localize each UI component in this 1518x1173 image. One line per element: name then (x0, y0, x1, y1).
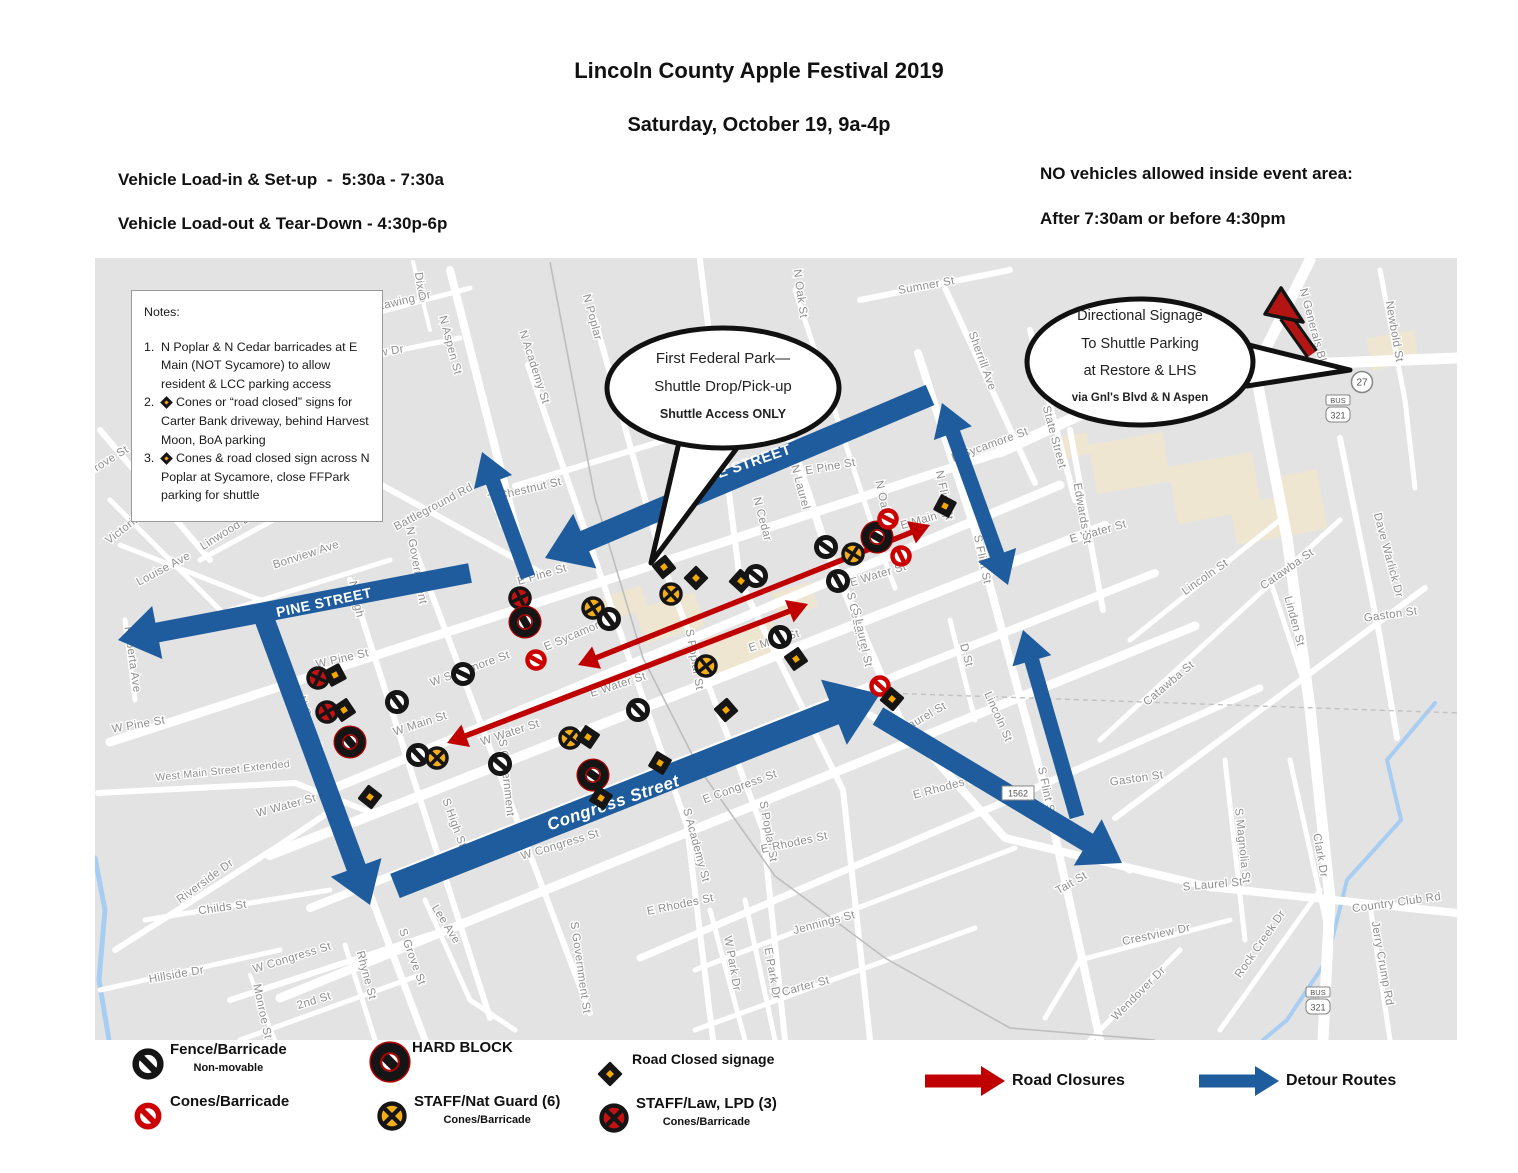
legend-detour-routes-icon (1196, 1066, 1282, 1096)
legend-nat-guard-label: STAFF/Nat Guard (6) (414, 1094, 560, 1111)
marker-guard (427, 748, 447, 768)
svg-text:BUS: BUS (1330, 396, 1345, 405)
route-shield-1562: 1562 (1002, 786, 1034, 800)
marker-fence (628, 700, 647, 719)
bubble-text: First Federal Park— (656, 350, 790, 367)
festival-map: DixonLawing DrWestview DrN Aspen StN Asp… (95, 258, 1457, 1040)
street-label: Catawba St (1141, 659, 1197, 709)
restriction-line-1: NO vehicles allowed inside event area: (1040, 164, 1353, 184)
street-label: Sherrill Ave (966, 330, 998, 392)
legend-item-road-closures: Road Closures (922, 1066, 1125, 1096)
svg-text:27: 27 (1356, 378, 1368, 389)
street-label: S High St (439, 797, 468, 850)
legend-item-cones: Cones/Barricade (126, 1094, 289, 1138)
legend-staff-law-sublabel: Cones/Barricade (636, 1116, 777, 1128)
road (1340, 438, 1397, 738)
schedule-load-in: Vehicle Load-in & Set-up - 5:30a - 7:30a (118, 170, 444, 190)
bubble-text: Shuttle Access ONLY (660, 407, 787, 421)
marker-fence (490, 754, 510, 774)
road (1220, 890, 1320, 1030)
marker-cones (525, 649, 546, 670)
building (1089, 432, 1172, 494)
legend-item-staff-law: STAFF/Law, LPD (3)Cones/Barricade (592, 1096, 777, 1140)
street-label: E Pine St (804, 457, 856, 478)
marker-fence (598, 608, 620, 630)
street-label: Bonview Ave (271, 539, 340, 572)
legend-nat-guard-icon (370, 1094, 414, 1138)
legend-item-hard-block: HARD BLOCK (368, 1040, 513, 1084)
street-label: N Poplar (580, 293, 604, 342)
marker-fence (815, 536, 837, 558)
legend-staff-law-label: STAFF/Law, LPD (3) (636, 1096, 777, 1113)
waterway (95, 858, 109, 1040)
marker-diamond (597, 1061, 622, 1086)
schedule-load-out: Vehicle Load-out & Tear-Down - 4:30p-6p (118, 214, 447, 234)
legend-road-closures-icon (922, 1066, 1008, 1096)
street-label: West Main Street Extended (155, 758, 291, 784)
marker-cones (137, 1105, 158, 1126)
street-label: S Academy St (680, 807, 711, 884)
page-subtitle: Saturday, October 19, 9a-4p (0, 114, 1518, 137)
legend-item-fence: Fence/BarricadeNon-movable (126, 1042, 287, 1086)
bubble-tail (1245, 344, 1350, 386)
notes-heading: Notes: (144, 303, 372, 322)
svg-text:321: 321 (1330, 411, 1345, 421)
legend-cones-icon (126, 1094, 170, 1138)
street-label: E Rhodes St (646, 892, 715, 918)
page-title: Lincoln County Apple Festival 2019 (0, 58, 1518, 84)
legend-fence-sublabel: Non-movable (170, 1062, 287, 1074)
note-item: 1.N Poplar & N Cedar barricades at E Mai… (144, 338, 372, 394)
marker-diamond (683, 565, 708, 590)
marker-guard (695, 655, 717, 677)
legend-staff-law-icon (592, 1096, 636, 1140)
road (950, 620, 975, 720)
legend-fence-icon (126, 1042, 170, 1086)
street-label: Wendover Dr (1110, 965, 1169, 1024)
svg-text:BUS: BUS (1310, 988, 1325, 997)
notes-list: 1.N Poplar & N Cedar barricades at E Mai… (144, 338, 372, 505)
bubble-text: Directional Signage (1077, 308, 1203, 324)
marker-cones (877, 508, 898, 529)
marker-fence (826, 569, 850, 593)
svg-text:321: 321 (1310, 1003, 1325, 1013)
legend-detour-routes-label: Detour Routes (1286, 1072, 1396, 1090)
street-label: Monroe St (250, 983, 273, 1040)
marker-fence (746, 566, 767, 587)
marker-cones (890, 545, 912, 567)
marker-law (602, 1106, 627, 1131)
marker-hard (333, 725, 367, 759)
street-label: Battleground Rd (392, 481, 475, 533)
legend-road-closed-icon (588, 1052, 632, 1096)
marker-guard (380, 1104, 405, 1129)
note-item: 3.Cones & road closed sign across N Popl… (144, 449, 372, 505)
legend-item-detour-routes: Detour Routes (1196, 1066, 1396, 1096)
bubble-text: To Shuttle Parking (1081, 336, 1199, 352)
marker-fence (451, 662, 475, 686)
street-label: Lincoln St (1180, 557, 1231, 598)
waterway (1263, 703, 1435, 1040)
marker-fence (769, 626, 792, 649)
legend-fence-label: Fence/Barricade (170, 1042, 287, 1059)
route-shield-321: BUS321 (1326, 395, 1350, 422)
notes-box: Notes: 1.N Poplar & N Cedar barricades a… (131, 290, 383, 522)
marker-hard (371, 1043, 410, 1082)
marker-fence (408, 745, 428, 765)
legend-cones-label: Cones/Barricade (170, 1094, 289, 1111)
marker-guard (660, 583, 681, 604)
street-label: Childs St (198, 899, 248, 918)
legend-item-nat-guard: STAFF/Nat Guard (6)Cones/Barricade (370, 1094, 560, 1138)
road-closure-arrow (447, 600, 808, 747)
legend-road-closed-label: Road Closed signage (632, 1052, 774, 1067)
bubble-text: via Gnl's Blvd & N Aspen (1072, 392, 1209, 404)
route-shield-321: BUS321 (1306, 987, 1330, 1014)
street-label: Hillside Dr (148, 964, 205, 985)
route-shield-27: 27 (1352, 372, 1373, 393)
legend-hard-block-label: HARD BLOCK (412, 1040, 513, 1057)
bubble-text: at Restore & LHS (1084, 363, 1197, 379)
legend-item-road-closed: Road Closed signage (588, 1052, 774, 1096)
note-item: 2.Cones or “road closed” signs for Carte… (144, 393, 372, 449)
restriction-line-2: After 7:30am or before 4:30pm (1040, 209, 1286, 229)
bubble-text: Shuttle Drop/Pick-up (654, 378, 792, 395)
street-label: N Academy St (516, 329, 551, 406)
marker-guard (841, 542, 865, 566)
svg-text:1562: 1562 (1008, 789, 1028, 799)
street-label: W Main St (392, 710, 449, 739)
legend-nat-guard-sublabel: Cones/Barricade (414, 1114, 560, 1126)
street-label: Crestview Dr (1121, 922, 1191, 948)
street-label: W Water St (255, 792, 318, 820)
street-label: Dave Warlick Dr (1371, 512, 1405, 599)
detour-arrow (474, 452, 535, 580)
street-label: N Oak St (791, 268, 810, 319)
legend-hard-block-icon (368, 1040, 412, 1084)
marker-fence (386, 691, 407, 712)
road (120, 545, 260, 600)
road-closed-diamond-icon (160, 452, 173, 465)
legend-road-closures-label: Road Closures (1012, 1072, 1125, 1090)
road (115, 808, 335, 950)
marker-fence (136, 1052, 161, 1077)
street-label: Jerry Crump Rd (1369, 920, 1396, 1006)
flyer-page: Lincoln County Apple Festival 2019 Satur… (0, 0, 1518, 1173)
road-closed-diamond-icon (160, 397, 173, 410)
